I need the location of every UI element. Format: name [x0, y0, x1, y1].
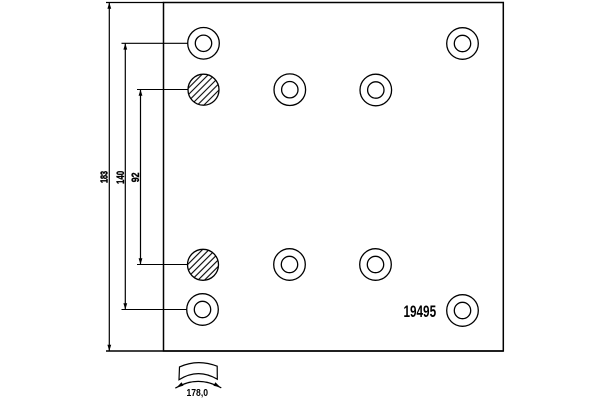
- svg-text:19495: 19495: [404, 303, 437, 321]
- svg-text:178,0: 178,0: [187, 388, 209, 399]
- svg-text:140: 140: [115, 171, 127, 184]
- svg-text:92: 92: [130, 173, 142, 183]
- svg-text:183: 183: [100, 171, 111, 183]
